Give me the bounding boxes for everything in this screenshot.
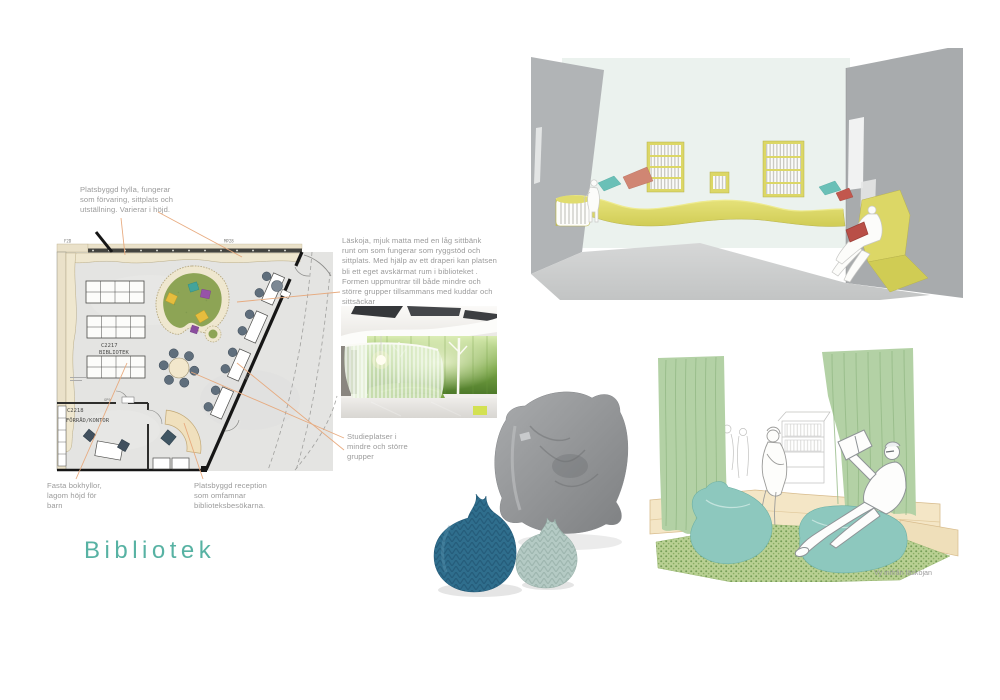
laskoja-blob: [156, 266, 229, 342]
caption-laskoja-view: Vy inifrån läskojan: [848, 568, 958, 577]
fine-print: [70, 377, 86, 378]
wall-label-mp28: MP28: [224, 239, 234, 244]
floor-plan: C2217 BIBLIOTEK C2218 FÖRRÅD/KONTOR F2D …: [45, 228, 345, 480]
room-code-bibliotek: C2217: [101, 343, 118, 349]
book-box: [710, 172, 729, 193]
annotation-fasta-bokhyllor: Fasta bokhyllor, lagom höjd för barn: [47, 481, 127, 512]
beanbag-photos: [420, 386, 645, 600]
room-name-bibliotek: BIBLIOTEK: [99, 350, 129, 356]
bookshelf-3d-left: [647, 142, 684, 192]
wall-label-f2d: F2D: [64, 239, 72, 244]
door-label-gp9: GP9: [104, 398, 111, 402]
room-code-forrad: C2218: [67, 408, 84, 414]
presentation-board: C2217 BIBLIOTEK C2218 FÖRRÅD/KONTOR F2D …: [0, 0, 1000, 700]
annotation-studieplatser: Studieplatser i mindre och större gruppe…: [347, 432, 442, 463]
bookshelf-rows: [86, 281, 145, 378]
render-3d-bench-view: [528, 48, 980, 300]
page-title: Bibliotek: [84, 537, 215, 565]
sketch-laskoja-interior: [645, 346, 967, 582]
annotation-reception: Platsbyggd reception som omfamnar biblio…: [194, 481, 299, 512]
annotation-laskoja: Läskoja, mjuk matta med en låg sittbänk …: [342, 236, 522, 307]
lounge-chair: [272, 281, 283, 292]
annotation-platsbyggd-hylla: Platsbyggd hylla, fungerar som förvaring…: [80, 185, 215, 216]
gray-beanbag: [495, 392, 628, 534]
room-name-forrad: FÖRRÅD/KONTOR: [66, 417, 110, 424]
bookshelf-3d-right: [763, 141, 804, 197]
